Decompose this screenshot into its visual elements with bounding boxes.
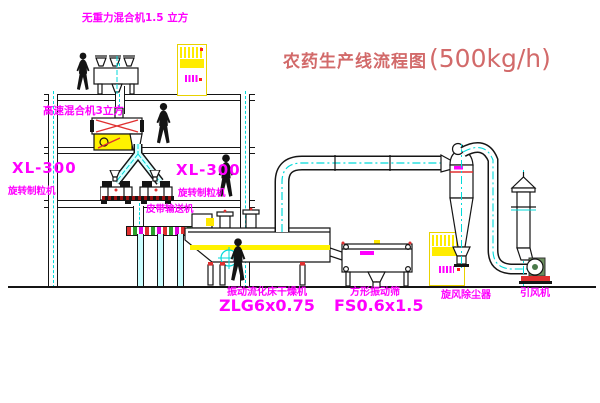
label-granulator-left-model: XL-300 [12, 161, 77, 176]
cabinet-text-mark [185, 75, 198, 82]
label-granulator-left-name: 旋转制粒机 [8, 187, 56, 197]
discharge-chute [133, 206, 144, 227]
label-mid-mixer: 高速混合机3立方 [43, 106, 124, 117]
label-fan: 引风机 [520, 289, 550, 299]
granulator-base [102, 196, 174, 200]
label-granulator-right-model: XL-300 [176, 163, 241, 178]
cabinet-indicator [200, 48, 203, 51]
title-text: 农药生产线流程图 [283, 47, 427, 72]
top-mixer-machine [92, 54, 142, 95]
vibrating-screen [330, 234, 420, 288]
label-screen-model: FS0.6x1.5 [334, 298, 423, 314]
label-cyclone: 旋风除尘器 [441, 291, 491, 301]
granulator-machines [100, 170, 178, 206]
stack-and-fan [505, 168, 560, 288]
label-granulator-right-name: 旋转制粒机 [178, 189, 226, 199]
cabinet-band [180, 59, 204, 68]
label-belt-conveyor: 皮带输送机 [146, 205, 194, 215]
worker-figure [227, 236, 249, 287]
worker-figure [73, 52, 93, 94]
process-flow-diagram: 农药生产线流程图 (500kg/h) [0, 0, 600, 403]
exhaust-duct [252, 140, 462, 240]
title-capacity: (500kg/h) [429, 44, 551, 73]
roof-slab [44, 94, 255, 101]
cabinet-indicator [199, 78, 202, 81]
label-top-mixer: 无重力混合机1.5 立方 [82, 13, 188, 24]
diagram-title: 农药生产线流程图 (500kg/h) [283, 44, 551, 73]
control-cabinet-top [177, 44, 207, 96]
conveyor-leg [137, 234, 144, 286]
label-dryer-model: ZLG6x0.75 [219, 298, 315, 314]
worker-figure [153, 102, 174, 148]
conveyor-leg [157, 234, 164, 286]
